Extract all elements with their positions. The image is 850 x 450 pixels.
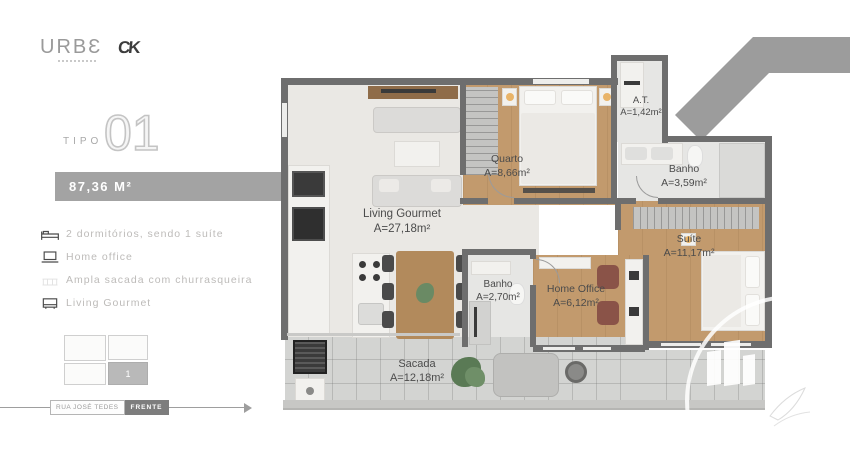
wall-quarto-bottom (460, 198, 488, 204)
keyplan-room (108, 335, 148, 360)
window (533, 79, 589, 84)
room-label-at: A.T. A=1,42m² (613, 95, 669, 120)
wall-quarto-left (460, 83, 466, 175)
keyplan-unit-number: 1 (125, 369, 130, 379)
feature-label: Ampla sacada com churrasqueira (66, 274, 252, 286)
balcony-bench (493, 353, 559, 397)
room-label-quarto: Quarto A=8,66m² (467, 153, 547, 180)
dining-chair (382, 283, 394, 300)
feature-label: Living Gourmet (66, 297, 151, 309)
street-arrow-icon (244, 403, 252, 413)
cooktop-burner (359, 261, 366, 268)
suite-closet (633, 207, 759, 229)
laptop-icon (40, 249, 60, 265)
keyplan-highlighted-unit: 1 (108, 362, 148, 385)
wall-banho-bottom (658, 198, 765, 204)
feature-item-dormitorios: 2 dormitórios, sendo 1 suíte (40, 222, 252, 245)
lamp (506, 93, 514, 101)
cooktop-burner (359, 274, 366, 281)
street-label-group: RUA JOSÉ TEDES FRENTE (50, 400, 169, 415)
pillow (524, 90, 556, 105)
kitchen-sink (358, 303, 384, 325)
feature-list: 2 dormitórios, sendo 1 suíte Home office… (40, 222, 252, 314)
room-label-banho-suite: Banho A=2,70m² (464, 278, 532, 304)
kitchen-oven (292, 171, 325, 197)
desk-monitor (629, 307, 639, 316)
bath-vanity (471, 261, 511, 275)
window (543, 347, 575, 350)
wall-at-left (611, 55, 617, 204)
wall-suite-left (615, 204, 621, 230)
room-label-sacada: Sacada A=12,18m² (357, 357, 477, 386)
feature-label: Home office (66, 251, 133, 263)
watermark-building-icon (743, 354, 755, 386)
sofa-pillow (431, 179, 451, 192)
sofa-pillow (379, 179, 399, 192)
feature-item-living-gourmet: Living Gourmet (40, 291, 252, 314)
bed-bench (523, 188, 595, 193)
balcony-icon (40, 272, 60, 288)
feature-item-home-office: Home office (40, 245, 252, 268)
urbe-logo: URBƐ (40, 36, 102, 59)
pillow (561, 90, 593, 105)
watermark-building-icon (707, 350, 721, 386)
floorplan-sheet: URBƐ CK TIPO 01 87,36 M² 2 dormitórios, … (0, 0, 850, 450)
watermark-building-icon (724, 340, 740, 386)
tipo-number: 01 (104, 108, 160, 158)
floor-plan: Living Gourmet A=27,18m² Quarto A=8,66m²… (281, 55, 772, 417)
cooktop-burner (373, 274, 380, 281)
wall-banho-top (662, 136, 772, 142)
wall-banho2-top (462, 249, 536, 255)
side-table (565, 361, 587, 383)
towel-bar (474, 307, 477, 337)
feature-label: 2 dormitórios, sendo 1 suíte (66, 228, 224, 240)
keyplan-room (64, 363, 106, 385)
window (583, 347, 611, 350)
desk-monitor (629, 271, 639, 280)
room-label-suite: Suíte A=11,17m² (649, 233, 729, 260)
area-banner: 87,36 M² (55, 172, 287, 201)
shower (719, 143, 765, 198)
pillow (745, 256, 760, 288)
room-label-home-office: Home Office A=6,12m² (534, 283, 618, 310)
sliding-door-track (287, 333, 460, 336)
dining-chair (382, 255, 394, 272)
window (282, 103, 287, 137)
keyplan-room (64, 335, 106, 361)
churrasqueira-grill (293, 340, 327, 374)
dining-chair (382, 311, 394, 328)
washer-slot (624, 81, 640, 85)
ck-logo: CK (117, 38, 140, 58)
balcony-cabinet-knob (306, 387, 314, 395)
lamp (603, 93, 611, 101)
front-tag: FRENTE (125, 400, 169, 415)
grill-icon (40, 295, 60, 311)
urbe-logo-subline (58, 60, 96, 62)
bed-icon (40, 226, 60, 242)
sink (651, 147, 673, 160)
tipo-label: TIPO (63, 136, 102, 147)
sink (625, 147, 647, 160)
street-name: RUA JOSÉ TEDES (50, 400, 125, 415)
wall-quarto-bottom (514, 198, 618, 204)
feature-item-sacada: Ampla sacada com churrasqueira (40, 268, 252, 291)
cooktop-burner (373, 261, 380, 268)
coffee-table (394, 141, 440, 167)
sofa (373, 107, 461, 133)
shower (469, 301, 491, 345)
wall-office-right (643, 255, 649, 350)
room-label-banho-social: Banho A=3,59m² (644, 163, 724, 190)
tv (381, 89, 436, 93)
kitchen-fridge (292, 207, 325, 241)
area-banner-text: 87,36 M² (55, 172, 287, 201)
room-label-living: Living Gourmet A=27,18m² (342, 207, 462, 237)
window (661, 343, 701, 346)
wall-at-top (611, 55, 668, 61)
